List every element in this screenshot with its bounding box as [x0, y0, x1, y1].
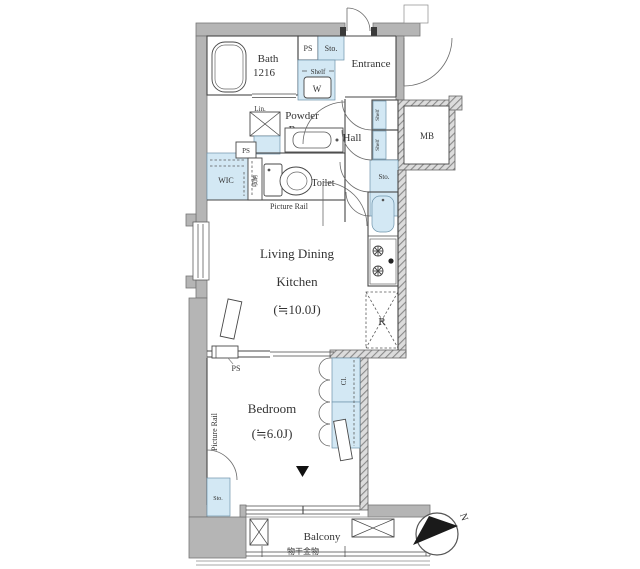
picture-rail-bedroom-label: Picture Rail	[210, 412, 219, 451]
sto-bedroom-label: Sto.	[213, 496, 223, 502]
balcony-window	[246, 506, 360, 514]
right-wall	[398, 170, 406, 356]
floor-plan: Entrance Bath 1216 PS Sto. Shelf W Powde…	[0, 0, 640, 569]
top-utility: PS Sto. Shelf W	[298, 36, 344, 100]
bedroom-area-label: (≒6.0J)	[252, 426, 293, 441]
compass: N	[413, 512, 470, 555]
bedroom-label: Bedroom	[248, 401, 296, 416]
ps-label: PS	[304, 44, 313, 53]
bath-room: Bath 1216	[207, 36, 298, 98]
meter-box-label: MB	[420, 131, 434, 141]
wic-room: WIC PS 収納	[207, 142, 262, 200]
ldk-label2: Kitchen	[276, 274, 318, 289]
toilet-fixture	[264, 164, 312, 196]
entrance-door-arc	[347, 8, 370, 31]
picture-rail-ldk-label: Picture Rail	[270, 202, 309, 211]
storage-jp-label: 収納	[251, 175, 259, 187]
compass-north-label: N	[457, 512, 470, 522]
bathtub	[212, 42, 246, 92]
ldk-room: Picture Rail Living Dining Kitchen (≒10.…	[207, 182, 367, 339]
ps-bedroom-label: PS	[232, 364, 241, 373]
shoe-shelf-lower-label: Shelf	[374, 139, 381, 151]
ldk-label1: Living Dining	[260, 246, 335, 261]
shoe-shelf-upper-label: Shelf	[374, 109, 381, 121]
bath-label: Bath	[258, 53, 279, 65]
door-panel	[220, 299, 242, 339]
refrigerator-label: R	[378, 316, 386, 328]
ldk-area-label: (≒10.0J)	[273, 302, 320, 317]
ps-wic-label: PS	[242, 147, 250, 155]
ac-unit-right	[352, 519, 394, 537]
hall-label: Hall	[343, 132, 362, 144]
door-hinge	[340, 27, 346, 36]
laundry-hardware-label: 物干金物	[287, 546, 319, 556]
kitchen-sink	[372, 196, 394, 232]
ldk-bedroom-wall: PS	[207, 346, 334, 373]
closet-upper-label: Cl.	[340, 377, 348, 386]
storage-strip: 収納	[248, 158, 262, 200]
bedroom-right-wall	[360, 358, 368, 510]
door-hinge	[371, 27, 377, 36]
entrance-label: Entrance	[351, 58, 390, 70]
window-marker	[296, 466, 309, 477]
sto-hall-upper-label: Sto.	[378, 173, 389, 181]
bedroom-storage: Sto.	[207, 450, 237, 516]
refrigerator-space: R	[366, 292, 398, 348]
shelf-label: Shelf	[311, 68, 326, 76]
floor-plan-page: Entrance Bath 1216 PS Sto. Shelf W Powde…	[0, 0, 640, 569]
bedroom-room: Bedroom (≒6.0J) Picture Rail Cl. Cl. Sto…	[207, 358, 360, 516]
ac-unit-left	[250, 519, 268, 545]
sto-label: Sto.	[325, 44, 338, 53]
ldk-window	[193, 222, 209, 280]
toilet-room: Toilet	[248, 153, 345, 200]
vanity-sink	[285, 128, 343, 152]
washer-label: W	[313, 84, 322, 94]
wic-label: WIC	[218, 176, 234, 185]
ps-bedroom: PS	[212, 346, 240, 373]
stove	[370, 239, 396, 284]
balcony-label: Balcony	[304, 531, 341, 543]
corridor-door-arc	[404, 38, 452, 86]
bath-size-label: 1216	[253, 67, 276, 79]
